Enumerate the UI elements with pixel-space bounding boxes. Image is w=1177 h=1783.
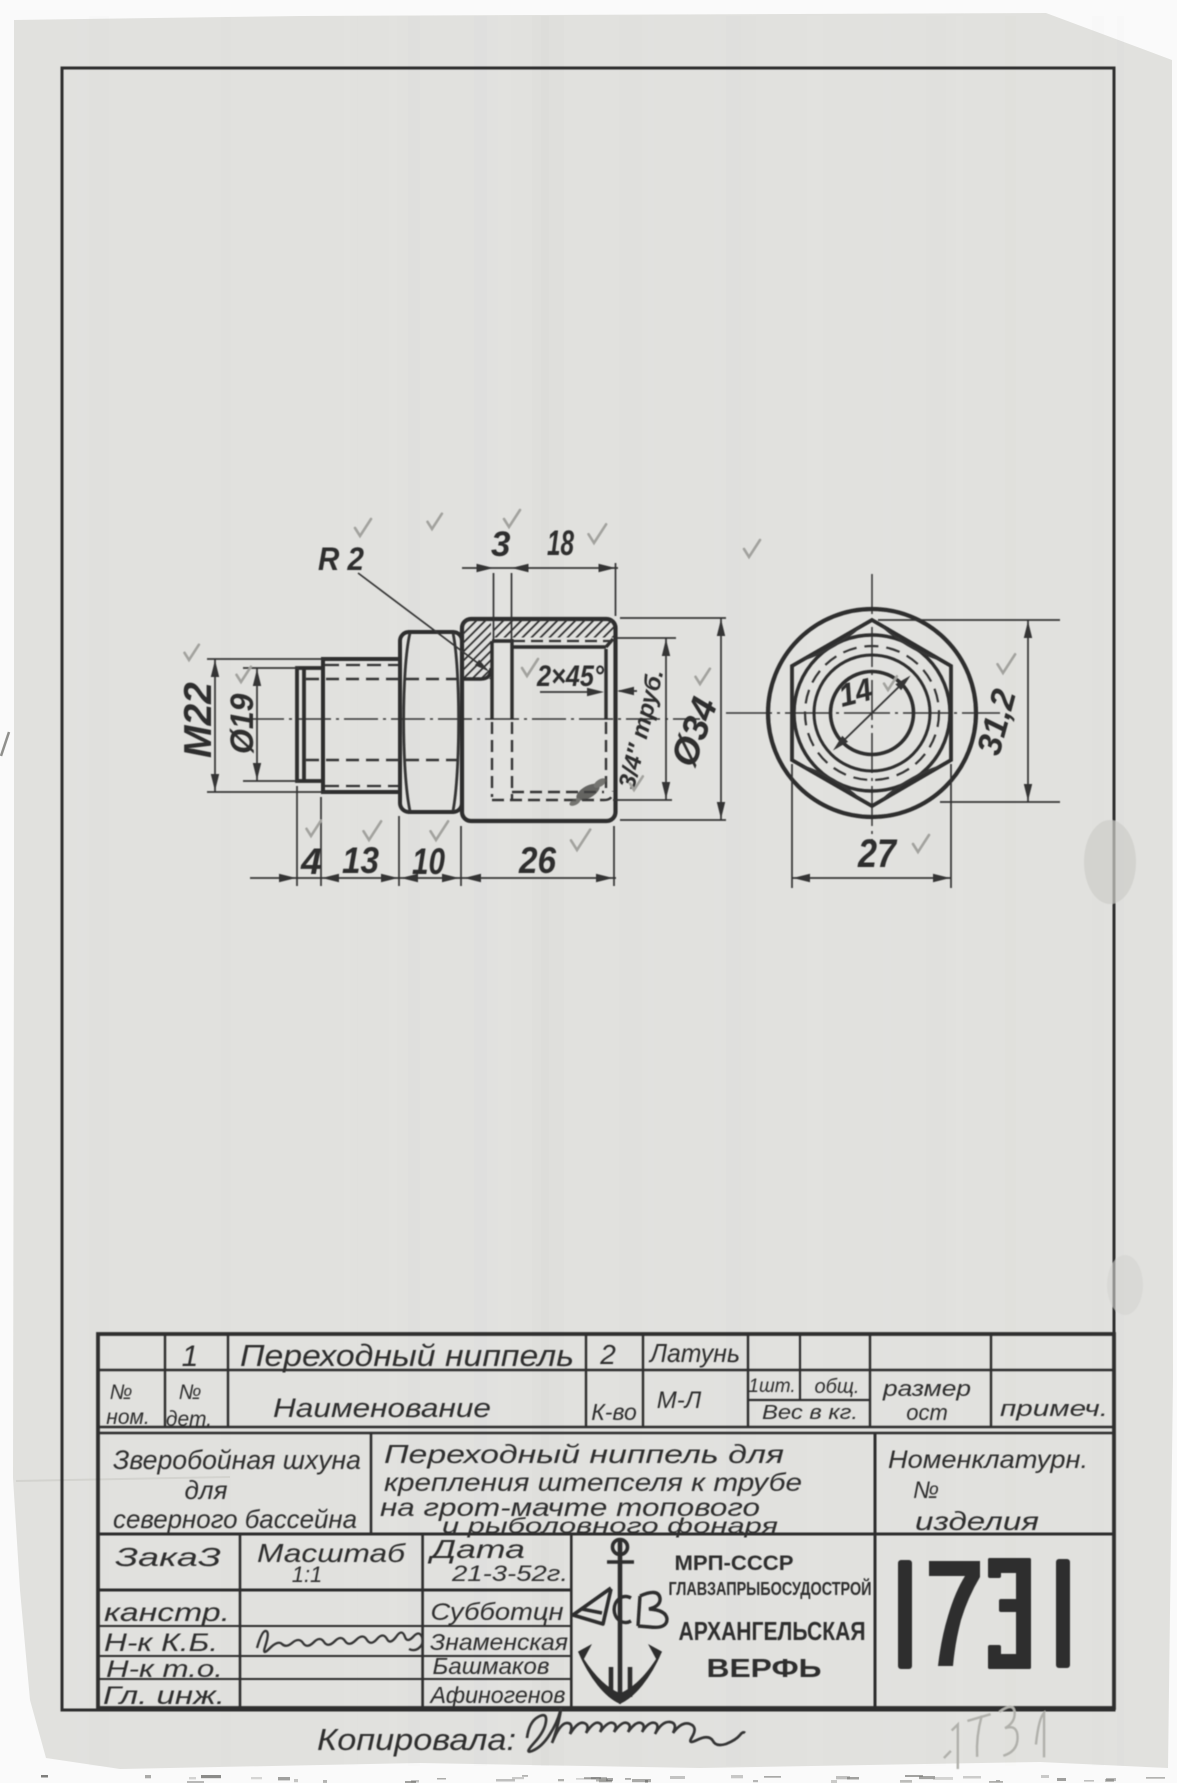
svg-text:К-во: К-во xyxy=(591,1399,637,1425)
svg-text:Субботцн: Субботцн xyxy=(431,1599,564,1626)
svg-text:Масштаб: Масштаб xyxy=(257,1538,407,1568)
svg-text:общ.: общ. xyxy=(815,1376,860,1398)
svg-text:примеч.: примеч. xyxy=(1000,1396,1108,1421)
svg-text:10: 10 xyxy=(412,841,445,882)
svg-text:северного бассейна: северного бассейна xyxy=(113,1504,357,1534)
svg-text:Гл. инж.: Гл. инж. xyxy=(103,1682,225,1710)
svg-text:Н-к т.о.: Н-к т.о. xyxy=(106,1656,223,1683)
svg-text:№: № xyxy=(913,1477,939,1504)
svg-text:26: 26 xyxy=(518,840,556,881)
svg-text:Знаменская: Знаменская xyxy=(430,1629,568,1655)
svg-text:1шт.: 1шт. xyxy=(748,1376,795,1397)
svg-text:1:1: 1:1 xyxy=(292,1562,323,1587)
svg-text:ЗакаЗ: ЗакаЗ xyxy=(115,1542,221,1572)
svg-text:Наименование: Наименование xyxy=(273,1393,491,1423)
svg-text:АРХАНГЕЛЬСКАЯ: АРХАНГЕЛЬСКАЯ xyxy=(679,1616,866,1646)
svg-text:№: № xyxy=(110,1381,133,1404)
svg-text:дет.: дет. xyxy=(166,1408,212,1431)
svg-text:Афиногенов: Афиногенов xyxy=(428,1682,565,1708)
svg-text:канстр.: канстр. xyxy=(104,1597,230,1627)
svg-text:4: 4 xyxy=(300,841,322,882)
svg-text:M22: M22 xyxy=(177,682,220,758)
svg-text:18: 18 xyxy=(547,524,574,563)
svg-text:Переходный ниппель: Переходный ниппель xyxy=(240,1338,574,1373)
svg-text:М-Л: М-Л xyxy=(657,1387,702,1414)
svg-text:№: № xyxy=(179,1381,202,1404)
svg-text:Номенклатурн.: Номенклатурн. xyxy=(888,1446,1088,1474)
svg-text:27: 27 xyxy=(857,832,897,876)
svg-text:Вес в кг.: Вес в кг. xyxy=(762,1402,858,1424)
svg-text:Дата: Дата xyxy=(427,1534,525,1564)
svg-text:1: 1 xyxy=(182,1340,199,1373)
svg-text:ном.: ном. xyxy=(106,1406,149,1429)
svg-text:Зверобойная шхуна: Зверобойная шхуна xyxy=(113,1445,361,1475)
svg-text:2×45°: 2×45° xyxy=(536,660,605,693)
svg-text:Башмаков: Башмаков xyxy=(433,1653,550,1679)
svg-text:ост: ост xyxy=(906,1400,948,1425)
svg-text:Копировала:: Копировала: xyxy=(317,1722,516,1757)
svg-text:Латунь: Латунь xyxy=(648,1338,740,1368)
svg-text:МРП-СССР: МРП-СССР xyxy=(675,1552,794,1575)
svg-text:2: 2 xyxy=(599,1339,616,1370)
svg-text:3: 3 xyxy=(491,525,511,564)
svg-text:Н-к К.Б.: Н-к К.Б. xyxy=(104,1629,218,1657)
svg-text:крепления штепселя к трубе: крепления штепселя к трубе xyxy=(384,1469,802,1497)
svg-text:R 2: R 2 xyxy=(318,541,364,577)
svg-text:для: для xyxy=(185,1475,228,1505)
svg-text:21-3-52г.: 21-3-52г. xyxy=(451,1561,568,1586)
svg-text:ГЛАВЗАПРЫБОСУДОСТРОЙ: ГЛАВЗАПРЫБОСУДОСТРОЙ xyxy=(669,1578,872,1599)
svg-text:Ø19: Ø19 xyxy=(224,693,260,754)
svg-text:13: 13 xyxy=(342,840,379,881)
svg-text:размер: размер xyxy=(882,1376,971,1401)
svg-text:ВЕРФЬ: ВЕРФЬ xyxy=(707,1653,822,1683)
svg-text:изделия: изделия xyxy=(915,1506,1039,1536)
svg-text:Переходный ниппель для: Переходный ниппель для xyxy=(384,1439,784,1469)
